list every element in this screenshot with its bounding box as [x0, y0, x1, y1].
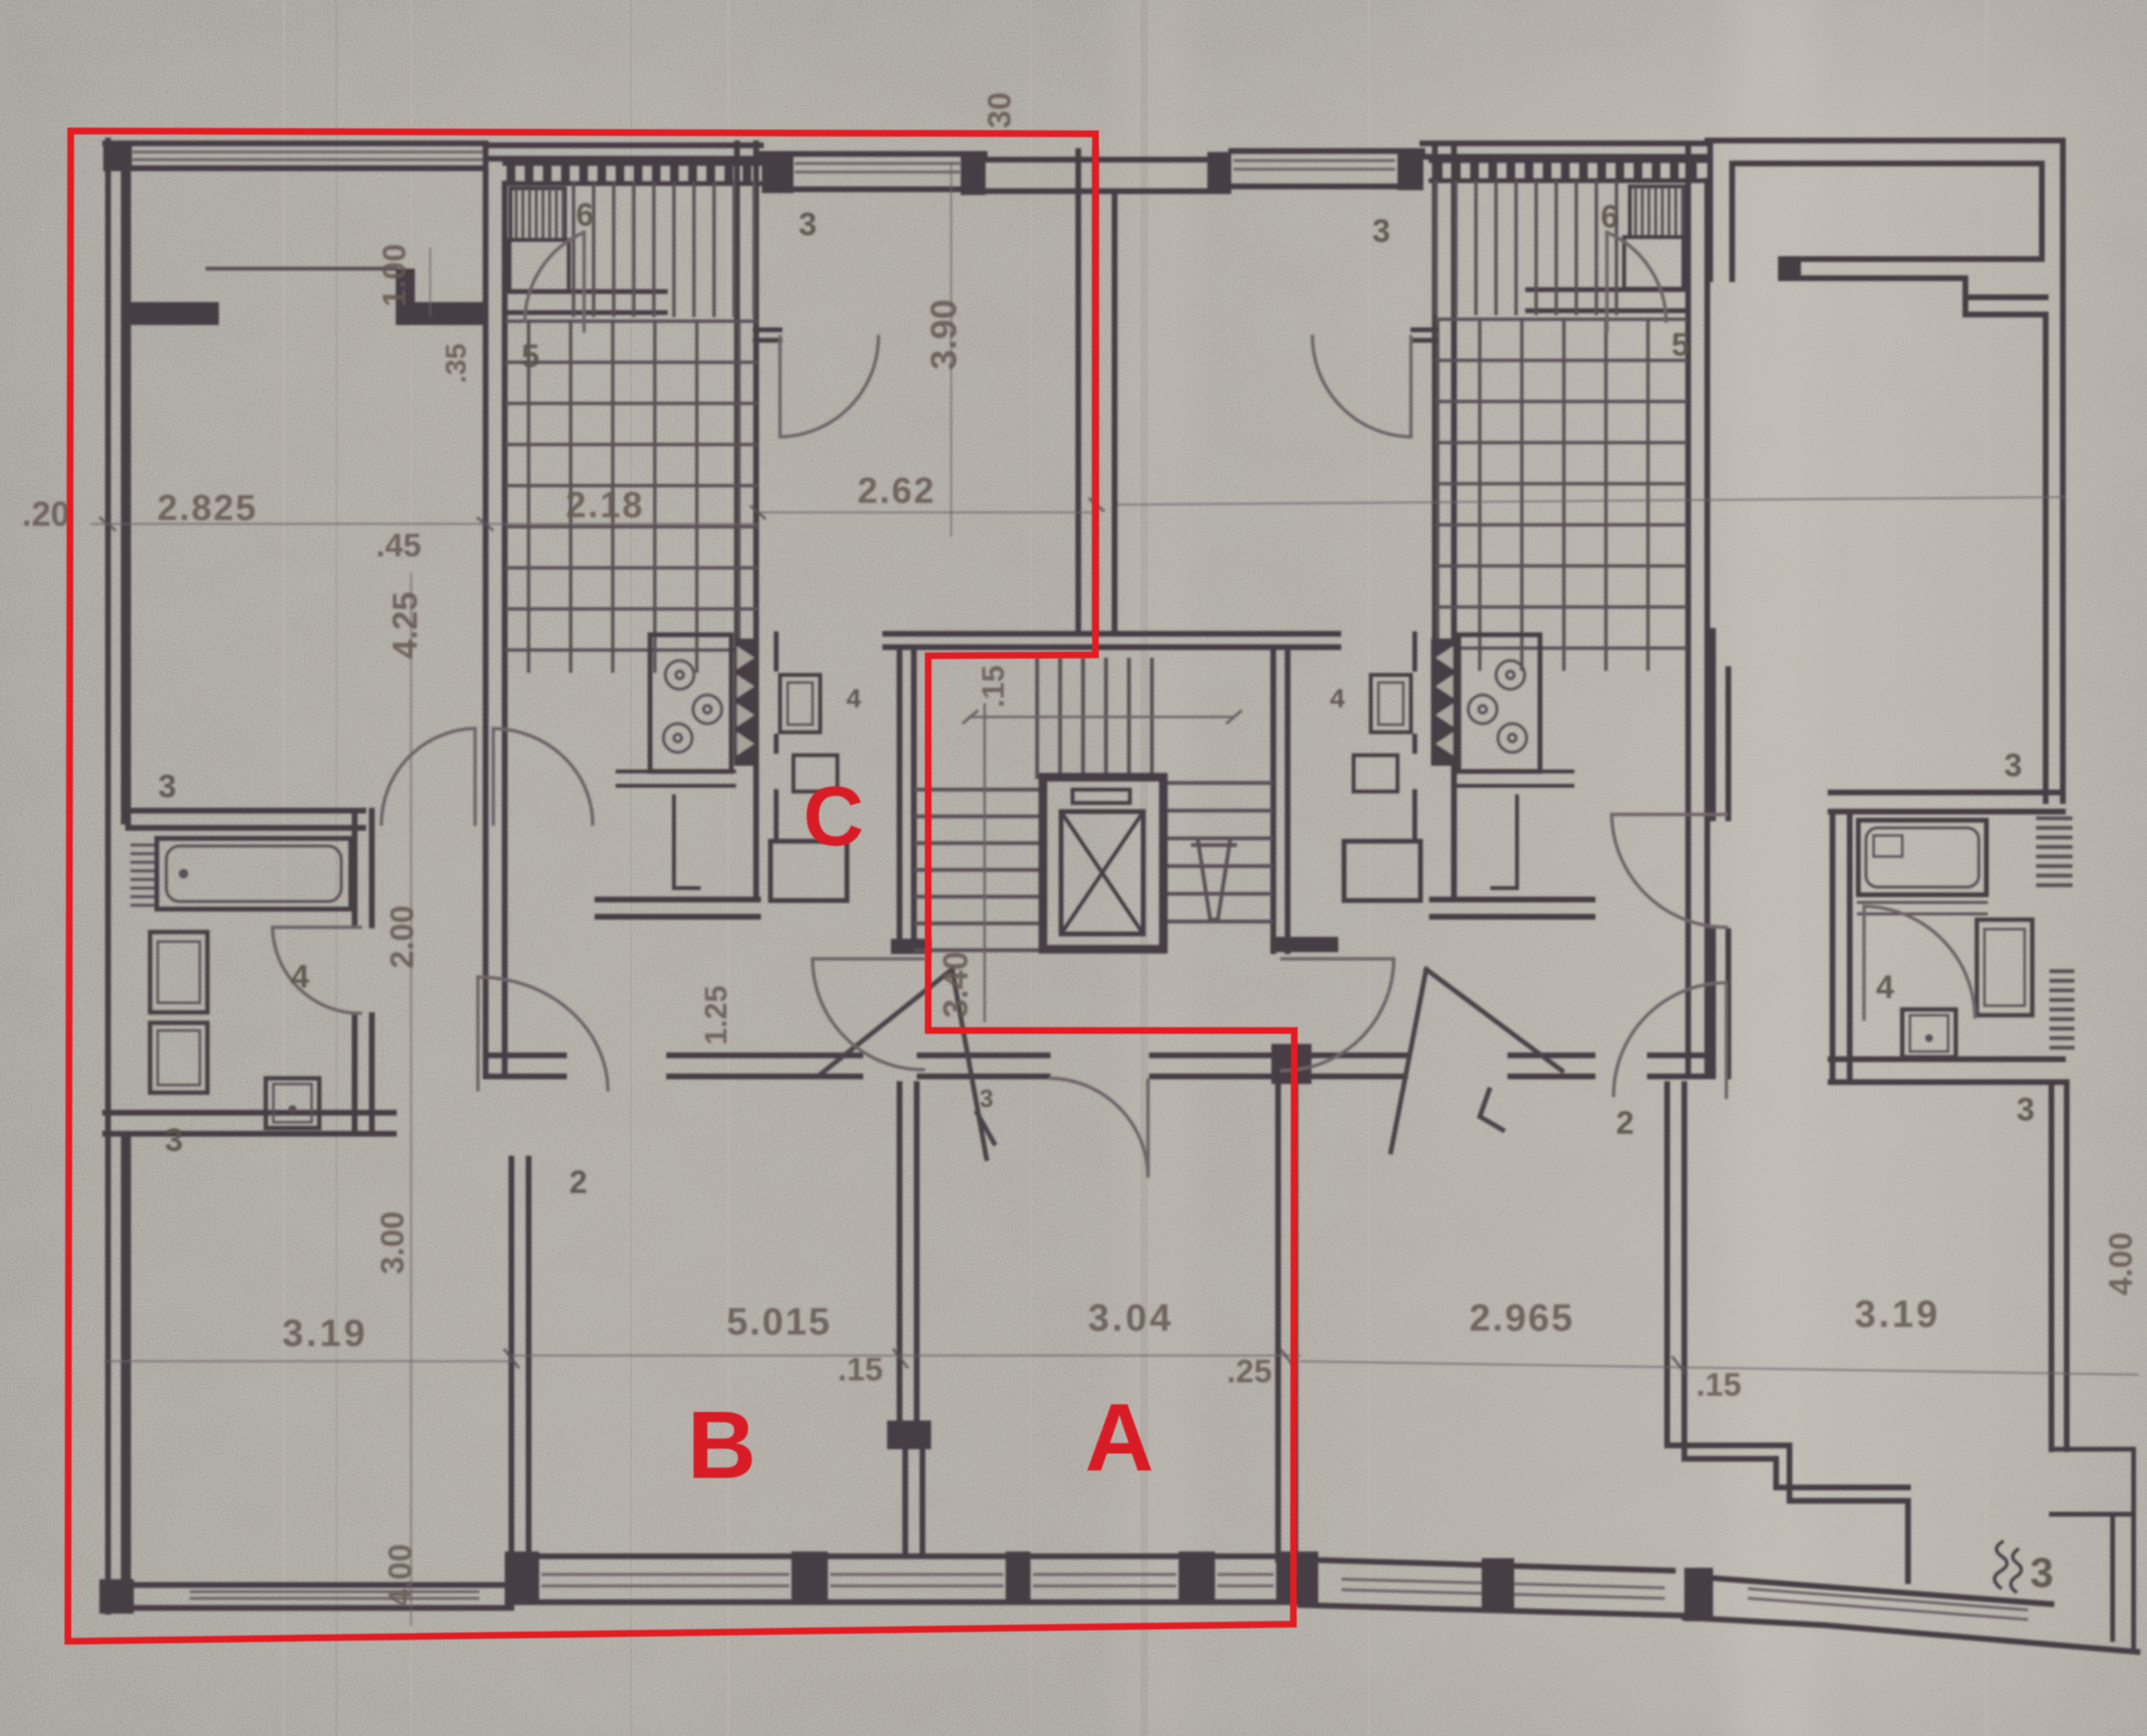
svg-text:4: 4	[292, 959, 310, 995]
svg-text:2.965: 2.965	[1469, 1297, 1574, 1339]
svg-text:6: 6	[1601, 199, 1619, 235]
svg-text:3.19: 3.19	[1854, 1293, 1941, 1335]
svg-text:4.00: 4.00	[382, 1544, 419, 1607]
svg-text:.20: .20	[22, 494, 70, 533]
svg-text:.15: .15	[976, 665, 1010, 707]
svg-text:3: 3	[159, 769, 177, 805]
svg-text:3: 3	[165, 1122, 184, 1159]
svg-text:3: 3	[980, 1084, 993, 1113]
svg-text:3.19: 3.19	[282, 1313, 368, 1355]
svg-text:1.00: 1.00	[377, 244, 413, 307]
svg-text:.35: .35	[441, 343, 472, 383]
svg-text:6: 6	[576, 197, 595, 233]
svg-text:C: C	[803, 769, 864, 863]
svg-text:2.62: 2.62	[857, 471, 936, 511]
svg-text:4: 4	[1876, 969, 1895, 1006]
svg-text:3: 3	[1373, 213, 1391, 250]
svg-text:5.015: 5.015	[727, 1301, 832, 1343]
svg-text:3: 3	[2005, 748, 2023, 784]
svg-text:2.825: 2.825	[157, 488, 257, 529]
svg-text:3: 3	[799, 206, 817, 243]
svg-text:1.25: 1.25	[699, 986, 733, 1045]
svg-text:.15: .15	[837, 1352, 882, 1388]
svg-text:5: 5	[522, 338, 540, 375]
svg-text:.25: .25	[1226, 1354, 1271, 1390]
svg-text:2.00: 2.00	[384, 905, 421, 968]
svg-text:A: A	[1085, 1384, 1154, 1491]
svg-text:4.00: 4.00	[2103, 1232, 2139, 1295]
svg-text:2: 2	[1616, 1105, 1635, 1141]
svg-text:4: 4	[846, 684, 861, 713]
svg-text:2: 2	[570, 1164, 588, 1201]
svg-text:3.00: 3.00	[375, 1211, 411, 1274]
svg-text:4.25: 4.25	[385, 592, 424, 659]
svg-text:B: B	[687, 1392, 756, 1499]
svg-text:.45: .45	[376, 528, 421, 564]
svg-text:3: 3	[2030, 1550, 2053, 1596]
svg-text:3.04: 3.04	[1088, 1297, 1174, 1339]
svg-text:3.90: 3.90	[924, 299, 965, 370]
svg-text:4: 4	[1330, 684, 1345, 713]
svg-text:3.40: 3.40	[936, 951, 975, 1018]
svg-text:3: 3	[2017, 1092, 2035, 1128]
svg-text:2.18: 2.18	[566, 486, 644, 526]
svg-text:.15: .15	[1696, 1367, 1741, 1403]
svg-text:5: 5	[1672, 327, 1690, 363]
